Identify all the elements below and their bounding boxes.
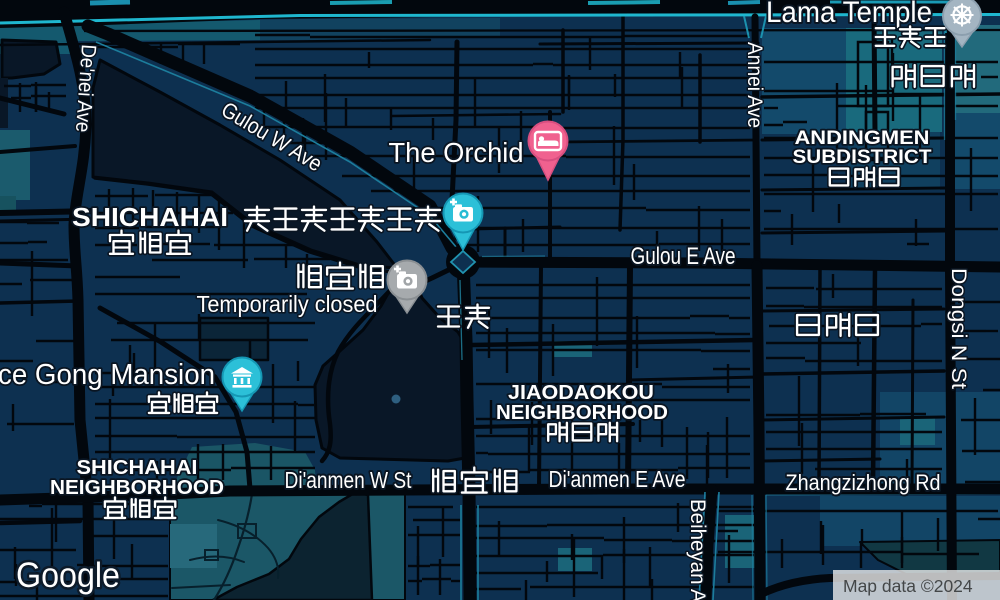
svg-text:Di'anmen W St: Di'anmen W St <box>285 467 413 493</box>
svg-text:Google: Google <box>16 556 120 595</box>
svg-text:Zhangzizhong Rd: Zhangzizhong Rd <box>786 470 941 495</box>
svg-text:SHICHAHAI: SHICHAHAI <box>77 457 198 479</box>
svg-text:NEIGHBORHOOD: NEIGHBORHOOD <box>496 402 668 424</box>
svg-text:ANDINGMEN: ANDINGMEN <box>795 128 930 149</box>
svg-text:SHICHAHAI: SHICHAHAI <box>72 202 228 232</box>
svg-text:Temporarily closed: Temporarily closed <box>197 291 378 317</box>
svg-text:Dongsi N St: Dongsi N St <box>947 268 970 389</box>
svg-text:Beiheyan Ave: Beiheyan Ave <box>686 499 709 600</box>
svg-text:Annei Ave: Annei Ave <box>743 42 766 128</box>
svg-text:Di'anmen E Ave: Di'anmen E Ave <box>549 466 686 492</box>
svg-text:NEIGHBORHOOD: NEIGHBORHOOD <box>50 477 224 499</box>
svg-text:JIAODAOKOU: JIAODAOKOU <box>508 382 654 404</box>
svg-text:SUBDISTRICT: SUBDISTRICT <box>793 147 932 168</box>
svg-text:The Orchid: The Orchid <box>389 137 524 168</box>
svg-text:ce Gong Mansion: ce Gong Mansion <box>0 359 215 391</box>
svg-text:Lama Temple: Lama Temple <box>766 0 932 29</box>
svg-text:Map data ©2024: Map data ©2024 <box>843 576 973 596</box>
svg-text:Gulou E Ave: Gulou E Ave <box>631 243 736 270</box>
